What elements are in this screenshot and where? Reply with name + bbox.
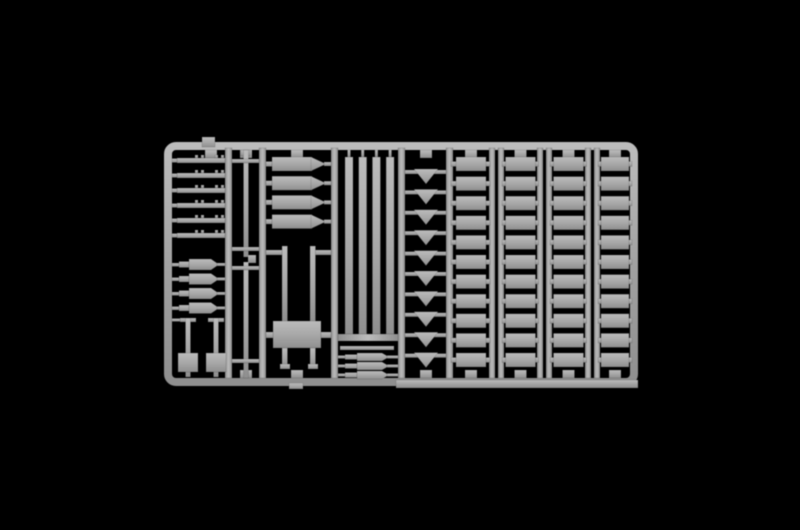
part-ladder-bar	[177, 218, 225, 223]
part-rectangle	[601, 275, 629, 289]
runner-rail	[259, 148, 266, 378]
part-small-block	[248, 255, 256, 263]
bullet-tail	[179, 305, 189, 311]
ladder-bar-stub	[172, 234, 177, 238]
sign-stub-left	[266, 200, 272, 205]
part-sign-body	[272, 195, 312, 209]
part-plank	[372, 157, 380, 334]
ladder-bar-stub	[172, 159, 177, 163]
bullet-stub-left	[172, 278, 179, 282]
part-rectangle	[601, 157, 629, 171]
ladder-bar-nub	[201, 185, 204, 188]
part-rectangle	[456, 255, 486, 269]
part-rectangle	[456, 275, 486, 289]
sign-stub-left	[266, 219, 272, 224]
bottom-gate-tab	[465, 370, 477, 378]
rect-lane-4	[598, 157, 632, 367]
sign-stub-left	[266, 162, 272, 167]
part-rectangle	[506, 294, 536, 308]
part-sign-body	[272, 157, 312, 171]
part-rectangle	[554, 275, 584, 289]
gate-foot-bottom	[289, 383, 303, 389]
plank-top-stub	[389, 150, 392, 157]
strip-tail	[345, 373, 357, 378]
part-rectangle	[554, 235, 584, 249]
column-2-poles	[232, 150, 259, 378]
ladder-bar-nub	[201, 200, 204, 203]
part-thin-strip	[340, 346, 394, 350]
part-arrowhead	[414, 189, 438, 204]
part-rectangle	[456, 196, 486, 210]
bullet-stub-right	[217, 307, 225, 310]
part-rectangle	[456, 177, 486, 191]
bullet-tail	[179, 262, 189, 268]
part-rectangle	[506, 177, 536, 191]
part-ladder-bar	[177, 173, 225, 178]
ladder-bar-nub	[201, 215, 204, 218]
bullet-stub-left	[172, 307, 179, 311]
part-strip-body	[357, 362, 389, 370]
part-rectangle	[456, 314, 486, 328]
part-rectangle	[506, 333, 536, 347]
runner-rail	[398, 148, 405, 378]
part-strip-body	[357, 353, 389, 361]
part-rectangle	[456, 235, 486, 249]
ladder-bar-nub	[215, 185, 218, 188]
prong-foot	[308, 364, 318, 369]
sprue-photo	[0, 0, 800, 530]
ladder-bar-nub	[215, 200, 218, 203]
column-4-pointed-strips	[338, 346, 398, 379]
part-rectangle	[456, 216, 486, 230]
plank-cross-rail	[338, 334, 398, 341]
top-gate-tab	[420, 150, 432, 158]
column-1-ladder-bars	[172, 155, 225, 238]
pole-crossbar	[232, 266, 259, 270]
part-rectangle	[554, 196, 584, 210]
ladder-bar-nub	[221, 200, 224, 203]
part-rectangle	[506, 235, 536, 249]
part-base-plate	[273, 321, 321, 348]
part-ladder-bar	[177, 188, 225, 193]
column-1-bullet-parts	[172, 259, 225, 314]
column-1-pad-posts	[172, 318, 226, 377]
bullet-stub-right	[217, 292, 225, 295]
sign-stub-right	[324, 162, 331, 166]
part-ladder-bar	[177, 158, 225, 163]
strip-stub-right	[387, 374, 398, 377]
plank-top-stub	[361, 150, 364, 157]
part-arrowhead	[414, 230, 438, 245]
strip-tail	[345, 364, 357, 369]
ladder-bar-nub	[195, 230, 198, 233]
ladder-bar-stub	[172, 204, 177, 208]
frame-bottom-step	[396, 380, 638, 388]
bottom-gate-tab	[515, 370, 527, 378]
part-ladder-bar	[177, 203, 225, 208]
ladder-bar-stub	[172, 189, 177, 193]
part-rectangle	[554, 157, 584, 171]
ladder-bar-nub	[195, 215, 198, 218]
part-arrowhead	[414, 210, 438, 225]
part-rectangle	[554, 314, 584, 328]
column-5-arrowheads	[405, 169, 446, 368]
ladder-bar-stub	[172, 219, 177, 223]
sign-stub-left	[266, 181, 272, 186]
ladder-bar-nub	[195, 200, 198, 203]
part-rectangle	[601, 216, 629, 230]
ladder-bar-nub	[215, 230, 218, 233]
ladder-bar-nub	[195, 155, 198, 158]
column-3-pointed-signs	[266, 157, 331, 229]
prong-foot	[280, 364, 290, 369]
sign-stub-right	[324, 220, 331, 224]
part-rectangle	[506, 216, 536, 230]
strip-tail	[345, 355, 357, 360]
column-3-base-plate	[266, 246, 331, 369]
part-rectangle	[456, 294, 486, 308]
ladder-bar-nub	[195, 170, 198, 173]
pole-crossbar	[232, 159, 259, 163]
part-rectangle	[554, 294, 584, 308]
ladder-bar-nub	[215, 155, 218, 158]
column-4-planks	[338, 150, 398, 341]
bottom-gate-tab	[563, 370, 575, 378]
bullet-stub-left	[172, 292, 179, 296]
rect-lane-3	[550, 157, 587, 367]
part-sign-body	[272, 215, 312, 229]
part-rectangle	[554, 333, 584, 347]
part-rectangle	[601, 333, 629, 347]
ladder-bar-nub	[201, 155, 204, 158]
part-square-pad	[178, 353, 198, 372]
part-sign-body	[272, 176, 312, 190]
part-rectangle	[456, 157, 486, 171]
ladder-bar-nub	[215, 170, 218, 173]
part-plank	[345, 157, 353, 334]
part-prong	[282, 246, 288, 322]
part-strip-body	[357, 371, 389, 379]
part-rectangle	[456, 353, 486, 367]
runner-rail	[225, 148, 232, 378]
part-rectangle	[601, 353, 629, 367]
rect-lane-1	[451, 157, 490, 367]
part-rectangle	[601, 314, 629, 328]
part-pole	[244, 150, 249, 257]
ladder-bar-nub	[221, 155, 224, 158]
part-rectangle	[601, 196, 629, 210]
part-arrowhead	[414, 291, 438, 306]
ladder-bar-nub	[221, 215, 224, 218]
part-bullet-body	[189, 259, 219, 270]
part-prong	[310, 246, 316, 322]
bullet-stub-right	[217, 278, 225, 281]
part-rectangle	[554, 353, 584, 367]
part-square-pad	[206, 353, 226, 372]
part-rectangle	[506, 314, 536, 328]
ladder-bar-nub	[221, 185, 224, 188]
part-rectangle	[601, 294, 629, 308]
bottom-gate-tab	[420, 370, 432, 378]
sign-stub-right	[324, 181, 331, 185]
prong-stub	[266, 250, 282, 255]
ladder-bar-stub	[172, 174, 177, 178]
ladder-bar-nub	[201, 230, 204, 233]
post-stub	[172, 319, 180, 322]
part-arrowhead	[414, 169, 438, 184]
ladder-bar-nub	[221, 230, 224, 233]
part-arrowhead	[414, 271, 438, 286]
strip-stub-right	[387, 356, 398, 359]
part-rectangle	[456, 333, 486, 347]
part-rectangle	[506, 157, 536, 171]
part-arrowhead	[414, 332, 438, 347]
part-rectangle	[601, 235, 629, 249]
part-rectangle	[554, 177, 584, 191]
part-rectangle	[601, 177, 629, 191]
part-rectangle	[506, 255, 536, 269]
runner-rail	[331, 148, 338, 378]
part-arrowhead	[414, 353, 438, 368]
part-rectangle	[506, 196, 536, 210]
ladder-bar-nub	[215, 215, 218, 218]
part-rectangle	[554, 255, 584, 269]
part-rectangle	[506, 353, 536, 367]
gate-tab-top	[202, 137, 215, 147]
plank-top-stub	[348, 150, 351, 157]
part-ladder-bar	[177, 233, 225, 238]
part-rectangle	[506, 275, 536, 289]
plank-top-stub	[375, 150, 378, 157]
part-arrowhead	[414, 312, 438, 327]
pole-crossbar	[232, 359, 259, 363]
ladder-bar-nub	[221, 170, 224, 173]
rect-lane-2	[502, 157, 539, 367]
part-bullet-body	[189, 303, 219, 314]
part-bullet-body	[189, 274, 219, 285]
photo-canvas	[0, 0, 800, 530]
strip-stub-right	[387, 365, 398, 368]
base-plate-stub	[266, 332, 273, 338]
bullet-stub-right	[217, 263, 225, 266]
part-plank	[386, 157, 394, 334]
ladder-bar-nub	[195, 185, 198, 188]
bullet-stub-left	[172, 263, 179, 267]
bullet-tail	[179, 291, 189, 297]
part-plank	[359, 157, 367, 334]
bullet-tail	[179, 276, 189, 282]
part-rectangle	[554, 216, 584, 230]
base-plate-stub	[321, 332, 331, 338]
sign-stub-right	[324, 200, 331, 204]
bottom-gate-tab	[291, 370, 303, 378]
bottom-gate-tab	[609, 370, 621, 378]
pole-crossbar	[232, 247, 259, 251]
part-arrowhead	[414, 251, 438, 266]
ladder-bar-nub	[201, 170, 204, 173]
part-rectangle	[601, 255, 629, 269]
prong-stub	[316, 250, 332, 255]
part-bullet-body	[189, 288, 219, 299]
